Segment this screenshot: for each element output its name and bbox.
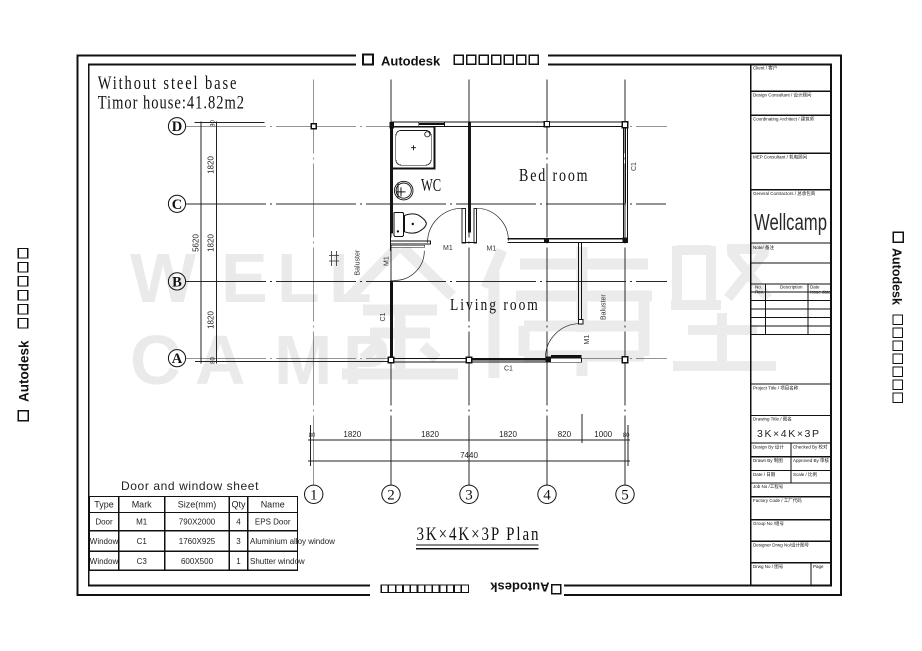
svg-text:790X2000: 790X2000	[179, 518, 216, 527]
svg-text:1820: 1820	[207, 156, 216, 174]
svg-text:3K×4K×3P Plan: 3K×4K×3P Plan	[417, 523, 541, 544]
svg-text:1: 1	[236, 557, 241, 566]
svg-text:Description: Description	[780, 285, 803, 290]
svg-text:A: A	[195, 321, 246, 399]
svg-text:Checked By 校对: Checked By 校对	[793, 444, 828, 451]
svg-text:1820: 1820	[343, 430, 361, 439]
svg-text:Client / 客户: Client / 客户	[753, 65, 777, 72]
svg-text:C3: C3	[137, 557, 148, 566]
svg-text:5620: 5620	[192, 234, 201, 252]
svg-text:Coordinating Architect / 建筑师: Coordinating Architect / 建筑师	[753, 116, 815, 123]
svg-text:W: W	[130, 239, 196, 317]
svg-text:1000: 1000	[594, 430, 612, 439]
svg-text:Window: Window	[90, 537, 119, 546]
svg-text:1: 1	[310, 488, 318, 504]
svg-text:D: D	[172, 119, 182, 135]
svg-text:Name: Name	[261, 500, 285, 510]
svg-text:Timor house:41.82m2: Timor house:41.82m2	[98, 92, 245, 113]
svg-text:4: 4	[236, 518, 241, 527]
svg-text:Size(mm): Size(mm)	[178, 500, 217, 510]
svg-text:Rev.: Rev.	[755, 290, 764, 295]
svg-text:1760X925: 1760X925	[179, 537, 216, 546]
svg-text:80: 80	[623, 433, 630, 439]
svg-text:Door and window sheet: Door and window sheet	[121, 479, 259, 493]
svg-text:Window: Window	[90, 557, 119, 566]
svg-text:M1: M1	[136, 518, 148, 527]
svg-text:Door: Door	[95, 518, 113, 527]
svg-text:3K×4K×3P: 3K×4K×3P	[757, 428, 821, 440]
svg-text:Qty: Qty	[231, 500, 246, 510]
svg-text:1820: 1820	[499, 430, 517, 439]
svg-text:M1: M1	[584, 335, 591, 345]
svg-text:Note/ 备注: Note/ 备注	[753, 244, 775, 251]
svg-text:Approved By 审核: Approved By 审核	[793, 457, 830, 464]
svg-text:M: M	[274, 321, 332, 399]
svg-text:3: 3	[236, 537, 241, 546]
svg-text:Autodesk: Autodesk	[490, 580, 550, 595]
svg-text:C1: C1	[137, 537, 148, 546]
svg-text:Living room: Living room	[450, 296, 540, 315]
svg-text:7440: 7440	[460, 451, 478, 460]
svg-text:Project Title / 项目名称: Project Title / 项目名称	[753, 385, 799, 392]
svg-text:820: 820	[558, 430, 572, 439]
svg-text:600X500: 600X500	[181, 557, 214, 566]
svg-text:E: E	[221, 239, 268, 317]
svg-text:Page: Page	[813, 564, 824, 569]
svg-text:C: C	[172, 197, 182, 213]
svg-text:1820: 1820	[421, 430, 439, 439]
svg-text:Design By 设计: Design By 设计	[753, 444, 784, 451]
svg-text:Group No /组号: Group No /组号	[753, 520, 785, 527]
svg-text:Issue date: Issue date	[810, 290, 831, 295]
svg-text:2: 2	[387, 488, 395, 504]
svg-text:B: B	[172, 274, 182, 290]
svg-text:Type: Type	[94, 500, 114, 510]
svg-text:Baluster: Baluster	[601, 294, 608, 320]
svg-text:General Contractors / 总承包商: General Contractors / 总承包商	[753, 190, 816, 197]
svg-text:Autodesk: Autodesk	[890, 248, 904, 305]
svg-text:Without steel base: Without steel base	[98, 72, 239, 93]
svg-text:Designer Drwg No/设计图号: Designer Drwg No/设计图号	[753, 542, 810, 549]
svg-text:Autodesk: Autodesk	[381, 54, 441, 69]
svg-text:Autodesk: Autodesk	[17, 340, 32, 402]
svg-text:C1: C1	[380, 312, 387, 321]
svg-text:Wellcamp: Wellcamp	[754, 211, 827, 236]
svg-text:Aluminium alloy window: Aluminium alloy window	[250, 537, 335, 546]
svg-text:MEP Consultant / 机电顾问: MEP Consultant / 机电顾问	[753, 154, 808, 161]
svg-text:Factory Code / 工厂代码: Factory Code / 工厂代码	[753, 497, 802, 504]
svg-text:WC: WC	[421, 176, 441, 196]
svg-text:5: 5	[621, 488, 629, 504]
svg-text:Drawing Title / 图名: Drawing Title / 图名	[753, 416, 792, 423]
svg-text:1820: 1820	[207, 311, 216, 329]
svg-text:Job No /工程号: Job No /工程号	[753, 483, 784, 490]
svg-text:1820: 1820	[207, 234, 216, 252]
svg-text:A: A	[172, 351, 183, 367]
svg-text:80: 80	[211, 357, 217, 364]
svg-text:Design Consultant / 设计顾问: Design Consultant / 设计顾问	[753, 92, 812, 99]
svg-text:M1: M1	[384, 256, 391, 266]
svg-text:80: 80	[309, 433, 316, 439]
svg-text:C1: C1	[504, 366, 513, 373]
svg-text:80: 80	[211, 120, 217, 127]
svg-text:Shutter window: Shutter window	[250, 557, 305, 566]
svg-text:3: 3	[465, 488, 473, 504]
svg-text:M1: M1	[487, 246, 497, 253]
svg-text:Scale / 比例: Scale / 比例	[793, 471, 818, 478]
svg-text:Mark: Mark	[132, 500, 152, 510]
svg-text:Bed room: Bed room	[519, 165, 589, 185]
svg-text:EPS Door: EPS Door	[255, 518, 291, 527]
svg-text:M1: M1	[443, 245, 453, 252]
svg-text:C1: C1	[631, 162, 638, 171]
svg-text:4: 4	[543, 488, 551, 504]
svg-text:Baluster: Baluster	[355, 249, 362, 275]
svg-text:Drawn By 制图: Drawn By 制图	[753, 457, 783, 464]
